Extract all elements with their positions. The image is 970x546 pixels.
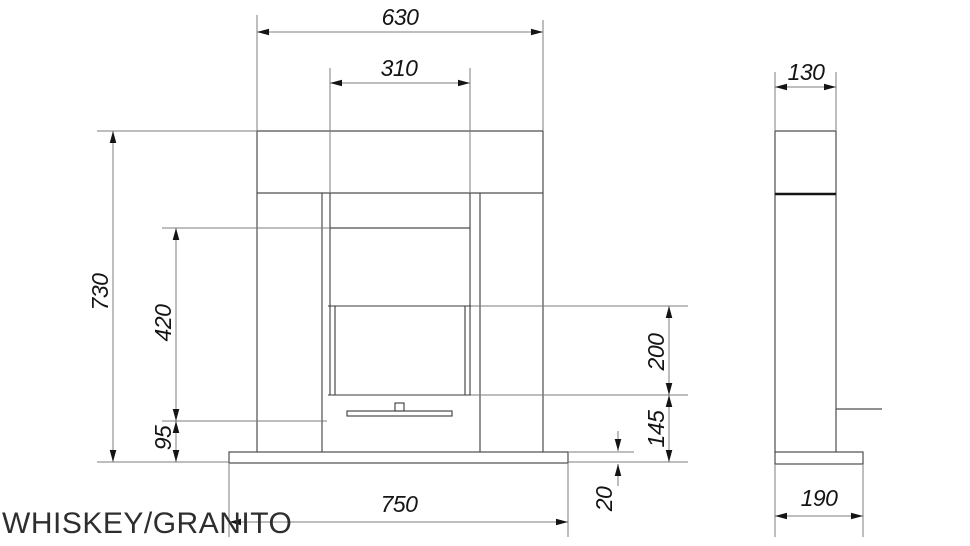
front-view — [229, 131, 568, 463]
dim-opening-width: 310 — [330, 55, 470, 83]
product-title: WHISKEY/GRANITO — [2, 507, 292, 540]
dim-opening-height: 420 — [150, 228, 176, 421]
dim-label-145: 145 — [643, 410, 669, 448]
dim-label-420: 420 — [150, 304, 176, 342]
front-base-slab — [229, 452, 568, 463]
burner — [347, 403, 452, 416]
dim-glass-height: 200 — [643, 306, 669, 395]
dim-base-depth: 190 — [775, 485, 863, 516]
dim-label-310: 310 — [381, 55, 419, 81]
dim-label-190: 190 — [801, 485, 839, 511]
side-extension-lines — [775, 72, 863, 537]
technical-drawing: 630 310 730 420 95 200 145 20 — [0, 0, 970, 546]
dim-body-depth: 130 — [775, 59, 836, 87]
dim-label-130: 130 — [788, 59, 826, 85]
burner-knob — [395, 403, 404, 411]
front-extension-lines — [97, 15, 688, 537]
dim-mantel-width: 630 — [257, 4, 543, 32]
dim-label-20: 20 — [591, 486, 617, 512]
dim-label-95: 95 — [150, 425, 176, 450]
drawing-canvas: 630 310 730 420 95 200 145 20 — [0, 0, 970, 546]
side-dimensions: 130 190 — [775, 59, 863, 516]
dim-label-730: 730 — [87, 273, 113, 311]
side-view — [775, 131, 882, 464]
dim-label-630: 630 — [382, 4, 420, 30]
dim-burner-to-floor: 95 — [150, 421, 176, 462]
dim-glass-bottom-to-floor: 145 — [643, 395, 669, 462]
dim-label-200: 200 — [643, 333, 669, 372]
dim-overall-height: 730 — [87, 131, 113, 462]
dim-label-750: 750 — [381, 491, 419, 517]
side-base-slab — [775, 452, 863, 464]
glass-window — [328, 306, 471, 395]
front-dimensions: 630 310 730 420 95 200 145 20 — [87, 4, 669, 522]
burner-tray — [347, 411, 452, 416]
dim-base-thickness: 20 — [591, 431, 618, 512]
